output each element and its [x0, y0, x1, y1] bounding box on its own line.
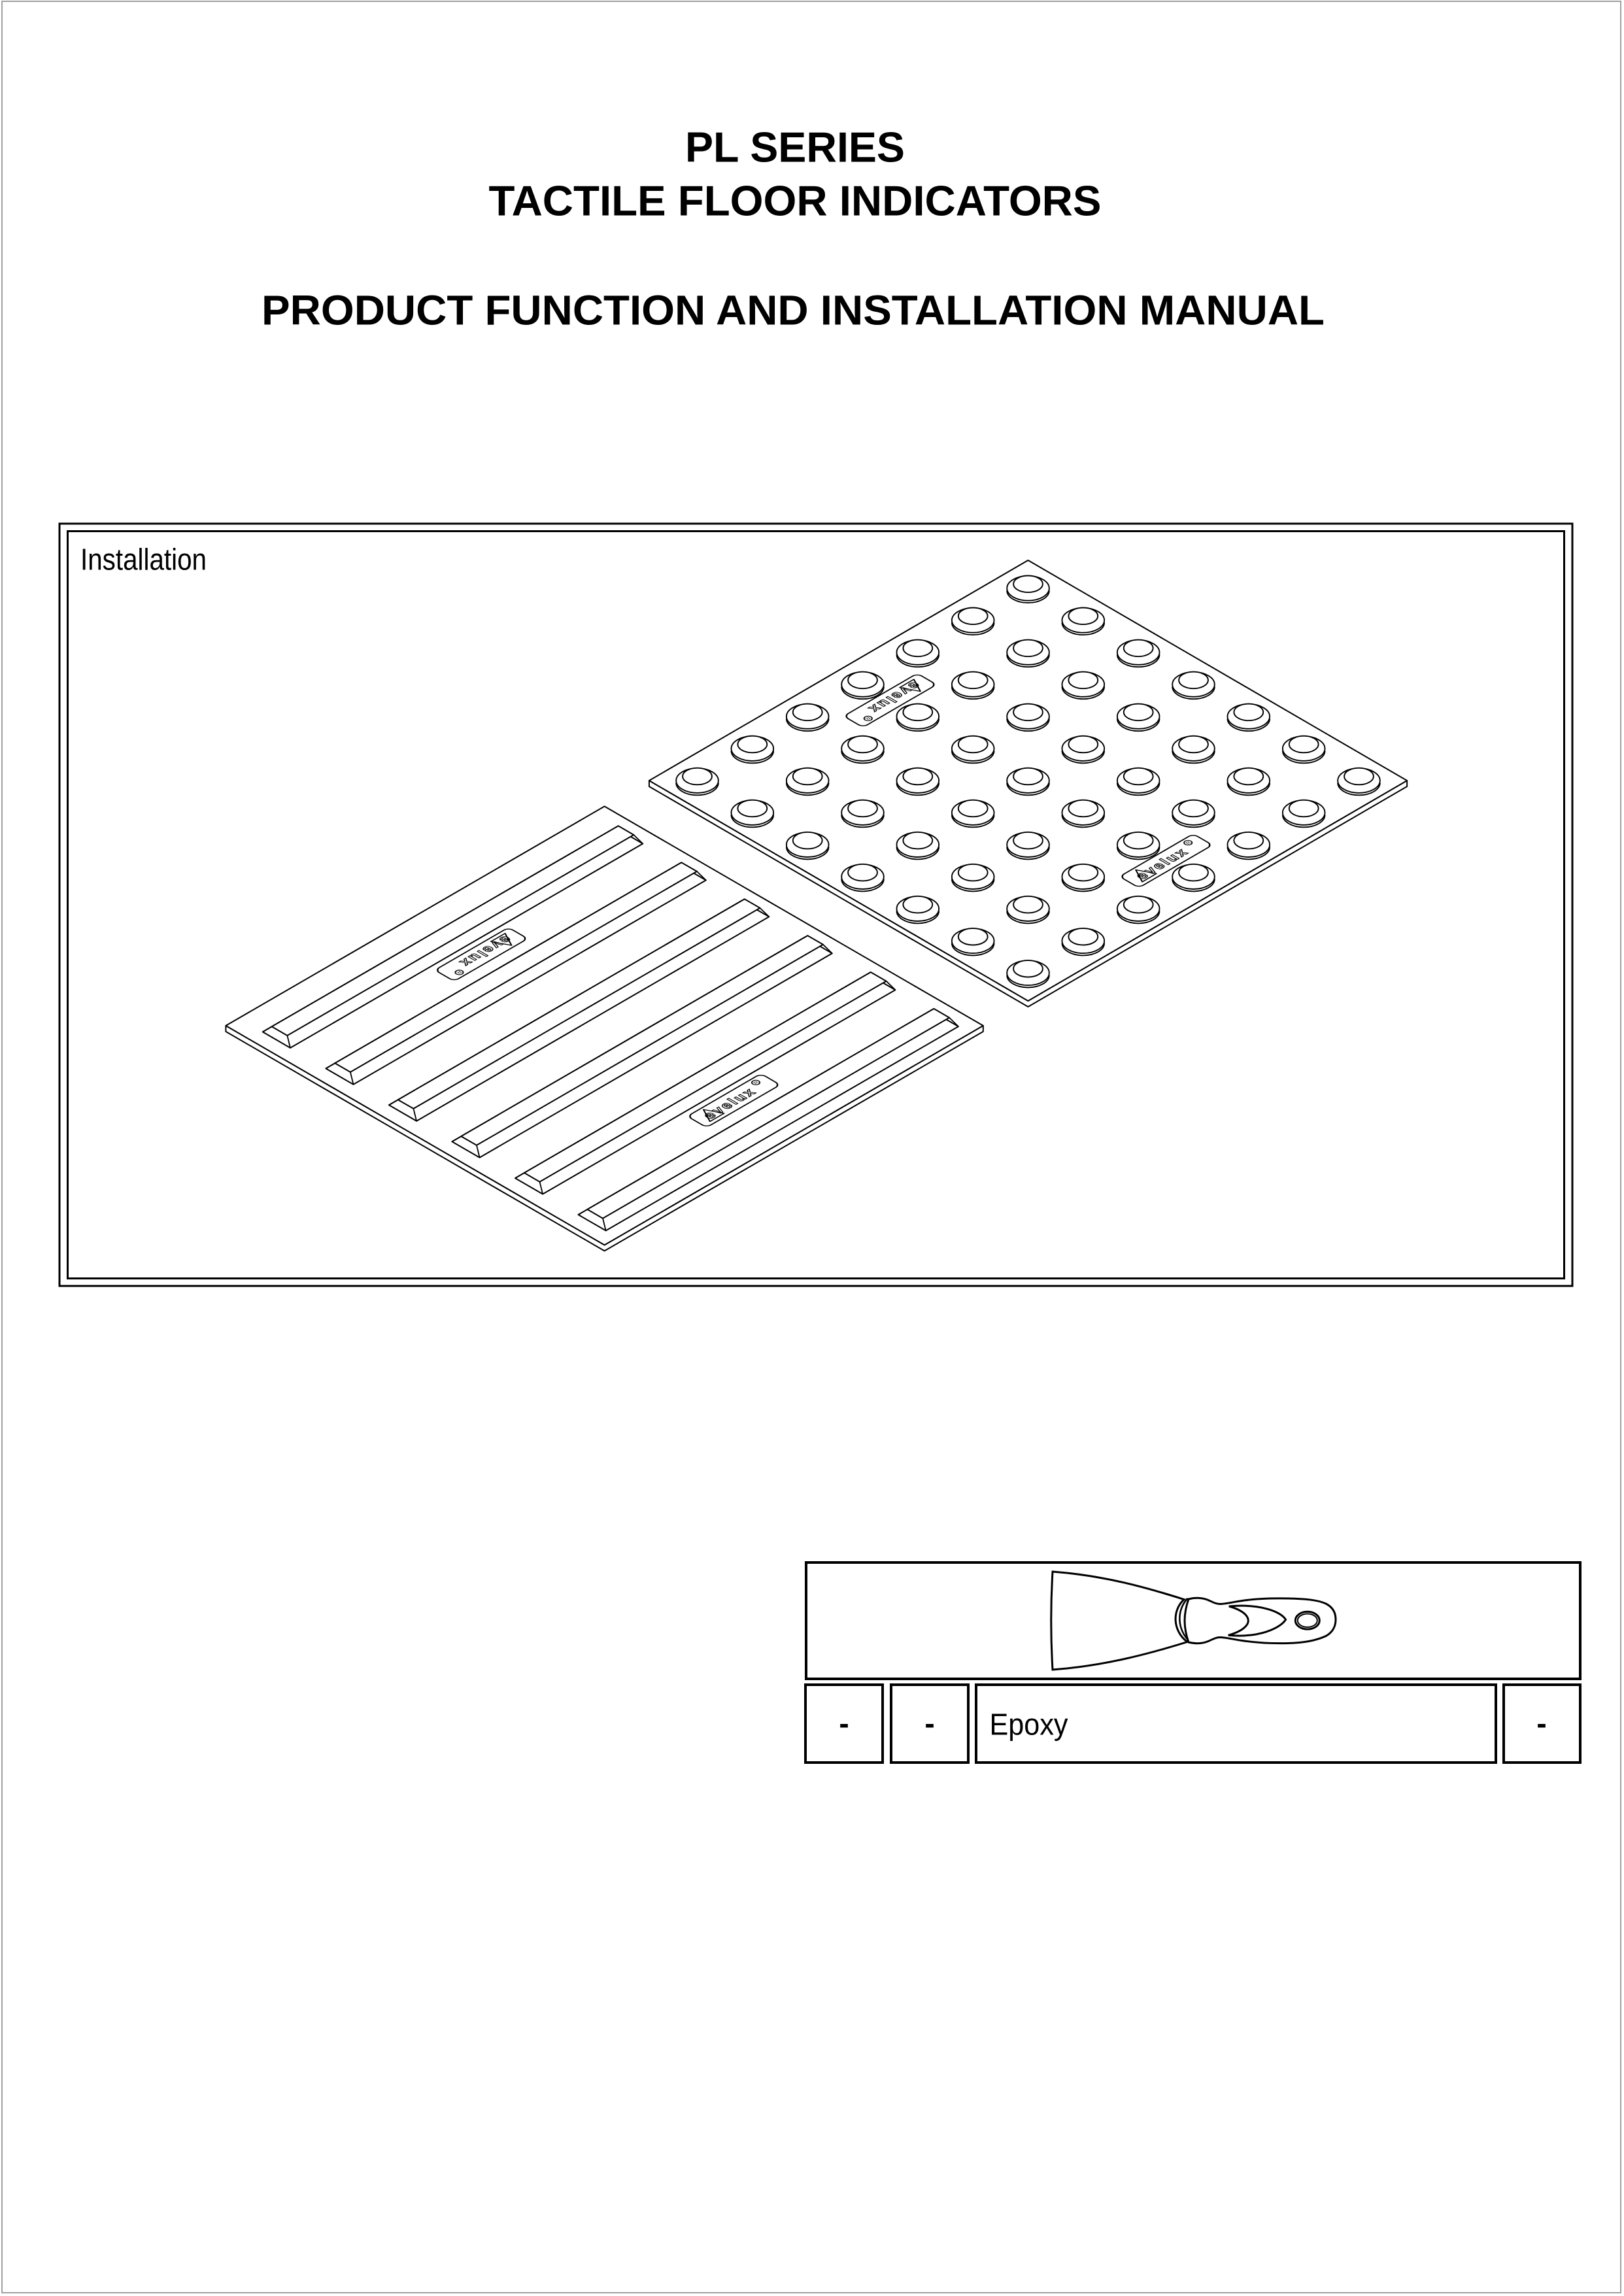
- svg-text:TACTILE FLOOR INDICATORS: TACTILE FLOOR INDICATORS: [489, 177, 1102, 225]
- svg-text:-: -: [924, 1706, 934, 1740]
- svg-text:-: -: [839, 1706, 849, 1740]
- svg-text:Epoxy: Epoxy: [990, 1708, 1068, 1742]
- svg-text:PL SERIES: PL SERIES: [685, 124, 905, 171]
- svg-text:-: -: [1536, 1706, 1546, 1740]
- svg-text:PRODUCT FUNCTION AND INSTALLAT: PRODUCT FUNCTION AND INSTALLATION MANUAL: [262, 287, 1325, 334]
- svg-text:Installation: Installation: [80, 543, 207, 577]
